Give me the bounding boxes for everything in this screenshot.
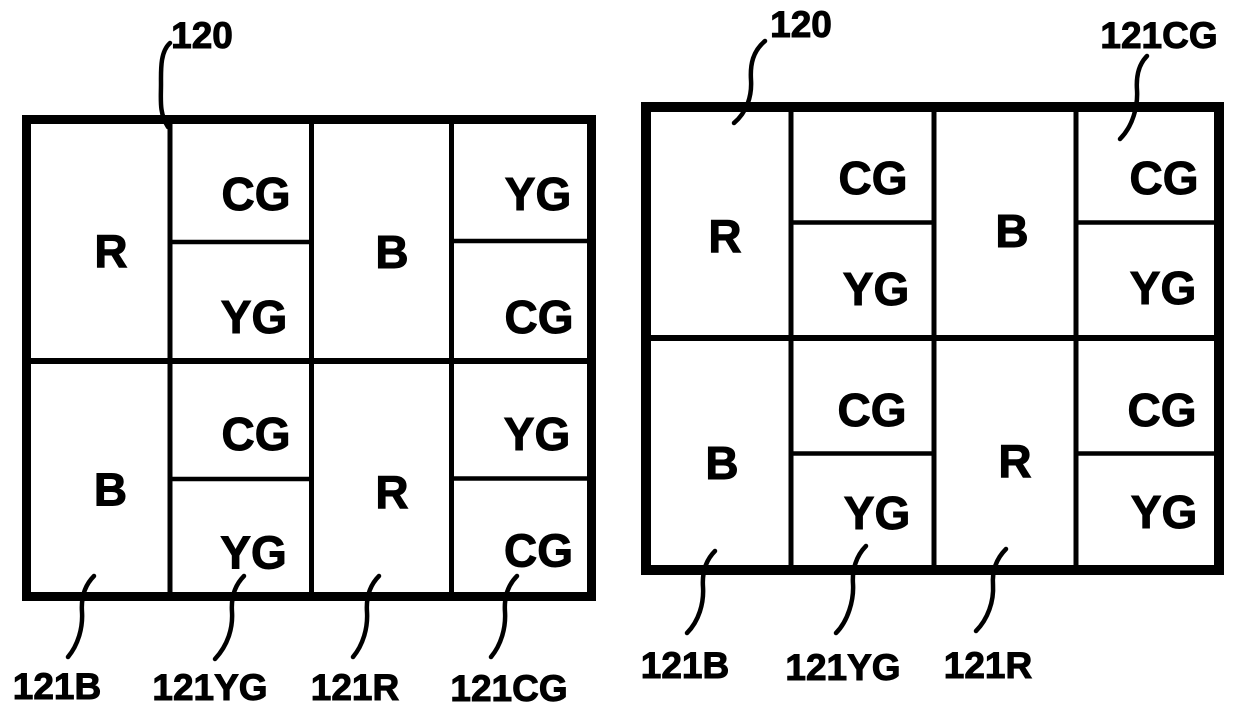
svg-text:B: B	[995, 205, 1028, 257]
svg-text:CG: CG	[838, 384, 907, 436]
svg-text:121R: 121R	[311, 667, 399, 708]
svg-text:R: R	[998, 435, 1031, 487]
svg-text:CG: CG	[504, 525, 573, 577]
svg-text:YG: YG	[844, 487, 910, 539]
svg-text:B: B	[375, 226, 408, 278]
svg-text:CG: CG	[1128, 384, 1197, 436]
svg-text:121YG: 121YG	[152, 667, 267, 708]
svg-text:121B: 121B	[13, 666, 101, 707]
svg-text:CG: CG	[505, 291, 574, 343]
svg-text:YG: YG	[1131, 486, 1197, 538]
svg-text:CG: CG	[222, 408, 291, 460]
svg-text:B: B	[705, 437, 738, 489]
svg-text:YG: YG	[843, 263, 909, 315]
svg-text:CG: CG	[839, 152, 908, 204]
svg-text:B: B	[94, 464, 127, 516]
svg-text:R: R	[375, 466, 408, 518]
svg-text:YG: YG	[504, 408, 570, 460]
svg-text:YG: YG	[505, 168, 571, 220]
svg-text:YG: YG	[1130, 262, 1196, 314]
svg-text:YG: YG	[221, 291, 287, 343]
svg-text:121CG: 121CG	[450, 668, 567, 709]
svg-text:121B: 121B	[641, 645, 729, 686]
svg-text:R: R	[708, 210, 741, 262]
svg-text:CG: CG	[222, 168, 291, 220]
svg-text:120: 120	[171, 15, 233, 56]
svg-text:CG: CG	[1130, 152, 1199, 204]
svg-text:121YG: 121YG	[785, 647, 900, 688]
svg-text:YG: YG	[220, 527, 286, 579]
svg-text:120: 120	[770, 4, 832, 45]
svg-text:R: R	[94, 225, 127, 277]
svg-text:121R: 121R	[944, 645, 1032, 686]
svg-text:121CG: 121CG	[1100, 15, 1217, 56]
